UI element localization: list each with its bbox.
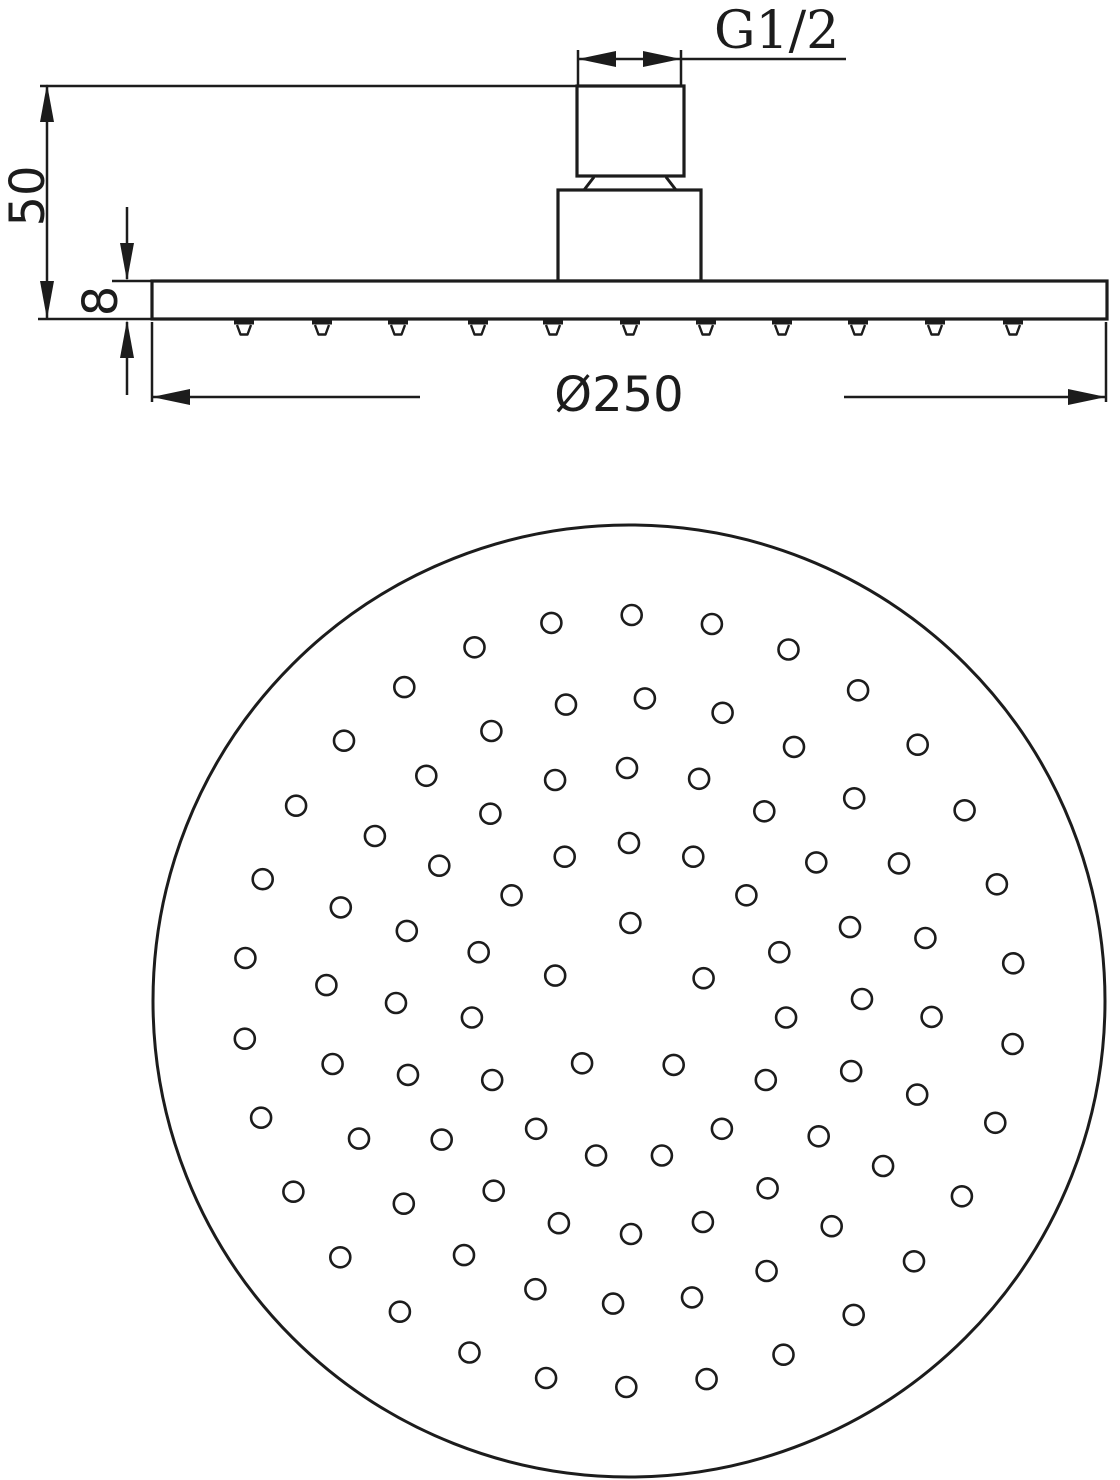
spray-hole [702, 614, 722, 634]
spray-hole [545, 770, 565, 790]
nozzle [234, 322, 254, 335]
spray-hole [841, 1061, 861, 1081]
dim-diameter-label: Ø250 [554, 367, 683, 423]
spray-hole [549, 1213, 569, 1233]
nozzle-funnel [1006, 325, 1020, 335]
spray-hole [840, 917, 860, 937]
connector-body [558, 190, 701, 281]
spray-hole [985, 1113, 1005, 1133]
nozzle [696, 322, 716, 335]
spray-hole [955, 800, 975, 820]
spray-hole [397, 921, 417, 941]
spray-hole [251, 1108, 271, 1128]
spray-hole [635, 688, 655, 708]
spray-hole [754, 801, 774, 821]
nozzle [468, 322, 488, 335]
spray-hole [253, 869, 273, 889]
spray-hole [844, 788, 864, 808]
spray-hole [334, 731, 354, 751]
spray-hole [769, 942, 789, 962]
nozzle-funnel [237, 325, 251, 335]
nozzle-funnel [775, 325, 789, 335]
nozzle [620, 322, 640, 335]
spray-hole [416, 766, 436, 786]
plate-cross-section [152, 281, 1107, 319]
thread-nipple [577, 86, 684, 176]
dimension-overall-height: 50 [0, 84, 56, 319]
arrow-right-icon [1068, 389, 1106, 405]
shower-head-technical-drawing: 50 8 G1/2 [0, 0, 1120, 1480]
spray-hole [502, 885, 522, 905]
spray-hole [481, 721, 501, 741]
spray-hole [697, 1369, 717, 1389]
spray-hole [429, 856, 449, 876]
spray-hole [779, 640, 799, 660]
dim-thickness-label: 8 [73, 286, 129, 317]
nozzle-funnel [546, 325, 560, 335]
faceplate-circle [153, 525, 1105, 1477]
spray-hole [316, 975, 336, 995]
spray-hole [526, 1119, 546, 1139]
spray-hole [922, 1007, 942, 1027]
spray-hole [776, 1008, 796, 1028]
spray-hole [454, 1245, 474, 1265]
spray-hole [822, 1216, 842, 1236]
spray-hole [386, 993, 406, 1013]
nozzle-funnel [928, 325, 942, 335]
arrow-right-icon [643, 51, 681, 67]
spray-hole [525, 1279, 545, 1299]
spray-hole [484, 1181, 504, 1201]
nozzle [848, 322, 868, 335]
spray-hole [1003, 1034, 1023, 1054]
spray-hole [908, 735, 928, 755]
spray-hole [622, 605, 642, 625]
nozzle-funnel [471, 325, 485, 335]
arrow-down-icon [120, 243, 134, 281]
spray-hole [758, 1178, 778, 1198]
dim-height-label: 50 [0, 165, 56, 226]
nozzle-funnel [851, 325, 865, 335]
nozzle-funnel [315, 325, 329, 335]
spray-hole [844, 1305, 864, 1325]
arrow-down-icon [40, 281, 54, 319]
nozzle [543, 322, 563, 335]
spray-hole [480, 804, 500, 824]
spray-hole [889, 853, 909, 873]
nozzle [1003, 322, 1023, 335]
spray-hole-pattern [235, 605, 1023, 1397]
spray-hole [987, 874, 1007, 894]
neck-flare-left [584, 177, 594, 190]
spray-hole [736, 885, 756, 905]
spray-hole [365, 826, 385, 846]
spray-hole [462, 1008, 482, 1028]
spray-hole [757, 1261, 777, 1281]
spray-hole [682, 1287, 702, 1307]
spray-hole [809, 1126, 829, 1146]
nozzle [772, 322, 792, 335]
spray-hole [756, 1070, 776, 1090]
side-elevation-view: 50 8 G1/2 [0, 1, 1107, 423]
spray-hole [683, 847, 703, 867]
spray-hole [586, 1146, 606, 1166]
nozzle [925, 322, 945, 335]
spray-hole [235, 1029, 255, 1049]
spray-face-view [153, 525, 1105, 1477]
nozzle-row [234, 322, 1023, 335]
spray-hole [541, 613, 561, 633]
neck-flare-right [666, 177, 676, 190]
spray-hole [469, 942, 489, 962]
dim-thread-label: G1/2 [714, 1, 839, 61]
arrow-left-icon [152, 389, 190, 405]
spray-hole [398, 1065, 418, 1085]
spray-hole [330, 1247, 350, 1267]
spray-hole [694, 968, 714, 988]
spray-hole [465, 637, 485, 657]
nozzle [388, 322, 408, 335]
spray-hole [603, 1294, 623, 1314]
spray-hole [390, 1302, 410, 1322]
spray-hole [915, 928, 935, 948]
dimension-diameter: Ø250 [152, 322, 1106, 423]
spray-hole [349, 1129, 369, 1149]
spray-hole [555, 847, 575, 867]
spray-hole [617, 758, 637, 778]
spray-hole [620, 913, 640, 933]
spray-hole [482, 1070, 502, 1090]
spray-hole [621, 1224, 641, 1244]
spray-hole [689, 769, 709, 789]
arrow-up-icon [120, 320, 134, 358]
spray-hole [806, 852, 826, 872]
spray-hole [545, 966, 565, 986]
spray-hole [331, 897, 351, 917]
spray-hole [848, 680, 868, 700]
spray-hole [774, 1345, 794, 1365]
nozzle [312, 322, 332, 335]
spray-hole [536, 1368, 556, 1388]
spray-hole [652, 1146, 672, 1166]
spray-hole [283, 1182, 303, 1202]
spray-hole [286, 796, 306, 816]
nozzle-funnel [623, 325, 637, 335]
spray-hole [664, 1055, 684, 1075]
spray-hole [432, 1130, 452, 1150]
spray-hole [904, 1251, 924, 1271]
spray-hole [873, 1156, 893, 1176]
spray-hole [852, 989, 872, 1009]
spray-hole [1003, 953, 1023, 973]
nozzle-funnel [391, 325, 405, 335]
spray-hole [616, 1377, 636, 1397]
spray-hole [619, 833, 639, 853]
dimension-thread-size: G1/2 [578, 1, 846, 86]
spray-hole [907, 1085, 927, 1105]
arrow-up-icon [40, 84, 54, 122]
arrow-left-icon [578, 51, 616, 67]
spray-hole [693, 1212, 713, 1232]
spray-hole [712, 1119, 732, 1139]
spray-hole [713, 703, 733, 723]
spray-hole [235, 948, 255, 968]
spray-hole [784, 737, 804, 757]
spray-hole [323, 1054, 343, 1074]
spray-hole [952, 1186, 972, 1206]
spray-hole [394, 1194, 414, 1214]
spray-hole [394, 677, 414, 697]
spray-hole [460, 1343, 480, 1363]
spray-hole [556, 695, 576, 715]
nozzle-funnel [699, 325, 713, 335]
spray-hole [572, 1053, 592, 1073]
